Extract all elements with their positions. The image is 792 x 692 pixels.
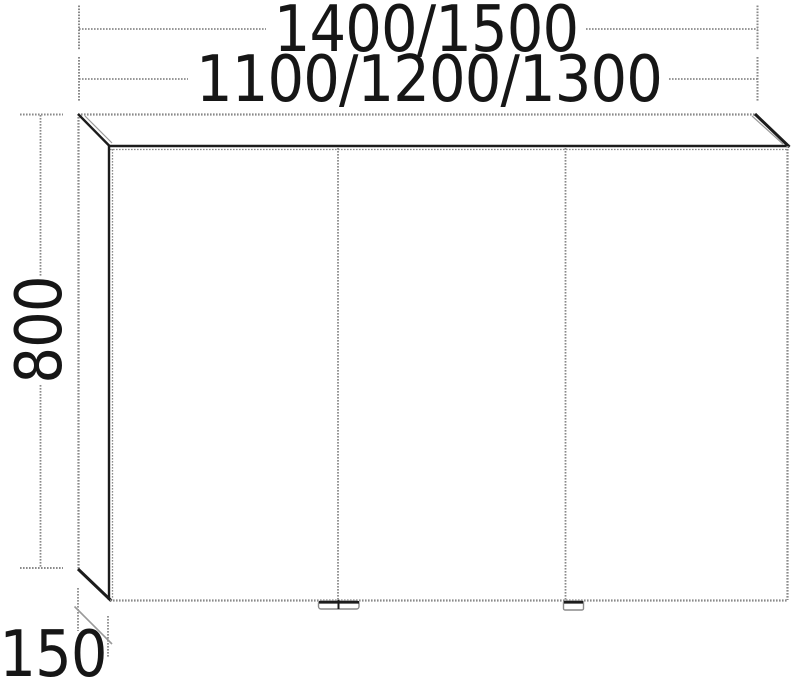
cabinet-top-right-diagonal-inner — [752, 116, 783, 144]
cabinet-top-left-diagonal-inner — [85, 116, 112, 143]
cabinet-body — [78, 114, 790, 601]
dim-height-label: 800 — [8, 276, 72, 383]
cabinet-top-left-diagonal — [78, 114, 110, 147]
cabinet-bottom-left-diagonal — [78, 569, 112, 601]
dim-depth-label: 150 — [0, 623, 107, 687]
cabinet-top-right-diagonal — [755, 114, 790, 147]
door-handles — [319, 600, 584, 610]
dim-carcass-width-label: 1100/1200/1300 — [196, 48, 662, 112]
technical-drawing-canvas: 1400/1500 1100/1200/1300 800 150 — [0, 0, 792, 692]
